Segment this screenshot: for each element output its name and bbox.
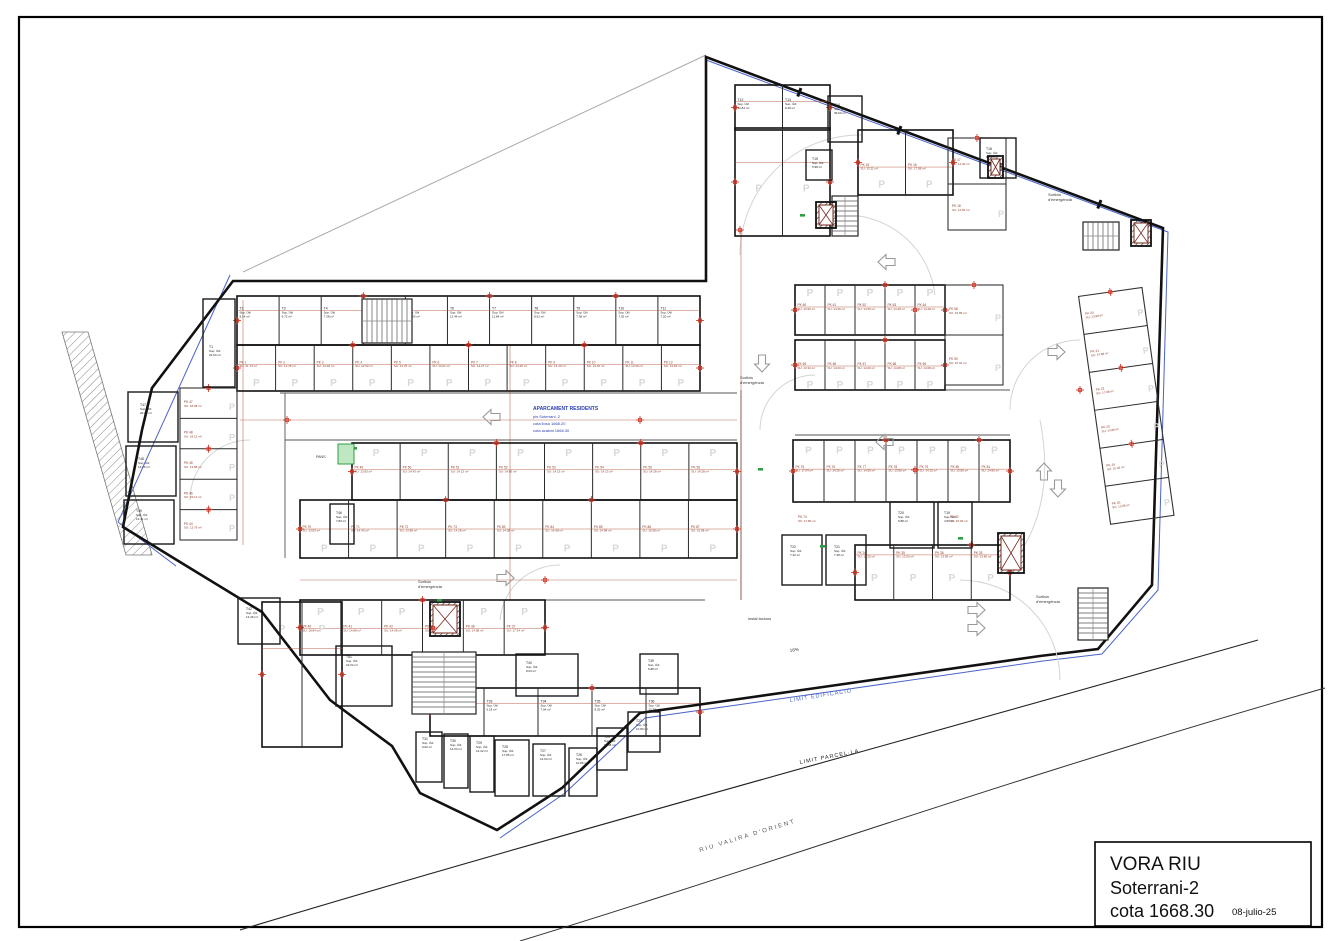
parking-watermark: P [321, 544, 328, 555]
stall-area: SU: 15.11 m² [184, 495, 201, 499]
parking-row-mid_bot: PK 70SU: 13.83 m²PPK 71SU: 14.43 m²PPK 7… [296, 496, 741, 558]
parking-row-mid_top: PK 49SU: 13.83 m²PPK 50SU: 14.43 m²PPK 5… [348, 439, 741, 500]
stall-area: SU: 17.80 m² [798, 519, 816, 523]
stall-area: SU: 15.06 m² [950, 519, 968, 523]
room-area: 12.41 m² [136, 517, 148, 521]
stall-area: SU: 13.60 m² [625, 364, 643, 368]
parking-watermark: P [867, 445, 874, 456]
project-name: VORA RIU [1110, 854, 1201, 875]
stall-area: SU: 12.63 m² [355, 364, 373, 368]
direction-arrow [755, 355, 770, 372]
red-cross-marker [911, 466, 919, 474]
exit-label2: d'emergència [740, 380, 765, 385]
stall-area: SU: 14.28 m² [691, 469, 709, 473]
red-cross-marker [465, 341, 473, 349]
room-area: 14.32 m² [476, 749, 488, 753]
stall-area: SU: 14.00 m² [858, 366, 876, 370]
parking-watermark: P [421, 448, 428, 459]
annotation-line4: cota acabat 1668.30 [533, 428, 570, 433]
installations-label: instal·lacions [748, 616, 771, 621]
parking-watermark: P [229, 402, 235, 412]
room-T22: T22Sup. Útil7.32 m² [782, 535, 822, 585]
pans-label: PANS [316, 455, 326, 459]
stall-area: SU: 14.43 m² [403, 469, 421, 473]
parking-watermark: P [469, 448, 476, 459]
room-area: 10.80 m² [636, 727, 648, 731]
room-T47: T47Sup. Útil20.04 m² [128, 392, 178, 442]
building-limit-line [500, 60, 1168, 838]
room-area: 14.33 m² [450, 747, 462, 751]
parking-row-tr_bot: PK 65SU: 13.34 m²PPK 66SU: 14.00 m²PPK 6… [791, 336, 949, 391]
parking-watermark: P [562, 378, 569, 389]
stall-area: SU: 17.04 m² [796, 469, 814, 473]
stall-area: SU: 14.98 m² [545, 529, 563, 533]
parking-watermark: P [600, 378, 607, 389]
parking-watermark: P [755, 183, 762, 194]
exit-label2: d'emergència [418, 584, 443, 589]
room-area: 7.02 m² [618, 315, 628, 319]
stairs-icon [1083, 222, 1119, 250]
room-area: 7.32 m² [790, 553, 800, 557]
parking-watermark: P [807, 288, 814, 299]
aisle-lines [280, 390, 1010, 600]
red-cross-marker [580, 341, 588, 349]
sheet-border [19, 17, 1322, 927]
room-area: 7.20 m² [660, 315, 670, 319]
stall-area: SU: 14.28 m² [448, 529, 466, 533]
room-area: 10.86 m² [576, 761, 588, 765]
stall-PK-74: PK 74SU: 17.80 m² [798, 515, 816, 523]
stairs-icon [412, 652, 476, 714]
red-cross-marker [733, 525, 741, 533]
parking-watermark: P [373, 448, 380, 459]
parking-row-mr_bot: PK 34SU: 13.25 m²PPK 35SU: 13.00 m²PPK 3… [851, 541, 1014, 600]
parking-watermark: P [330, 378, 337, 389]
stall-area: SU: 14.80 m² [499, 469, 517, 473]
red-cross-marker [349, 341, 357, 349]
room-T29: T29Sup. Útil14.32 m² [470, 736, 494, 792]
direction-arrow [876, 435, 893, 450]
parking-watermark: P [991, 445, 998, 456]
room-area: 7.38 m² [324, 315, 334, 319]
stall-area: SU: 13.79 m² [184, 526, 202, 530]
parking-watermark: P [878, 179, 885, 190]
door-mark [758, 468, 763, 471]
parking-watermark: P [639, 378, 646, 389]
river-label: RIU VALIRA D'ORIENT [699, 819, 797, 854]
stall-area: SU: 14.15 m² [920, 469, 938, 473]
room-area: 12.84 m² [738, 106, 750, 110]
parking-watermark: P [998, 209, 1004, 219]
exit-labels: Sortidad'emergència Sortidad'emergència … [418, 192, 1073, 604]
parking-row-tl: PK 1SU: 21.73 m²PPK 2SU: 13.78 m²PPK 3SU… [233, 341, 704, 391]
parking-watermark: P [807, 380, 814, 391]
parking-watermark: P [803, 183, 810, 194]
parking-watermark: P [837, 380, 844, 391]
parking-watermark: P [871, 573, 878, 584]
red-cross-marker [851, 569, 859, 577]
red-cross-marker [205, 445, 213, 453]
parking-watermark: P [897, 288, 904, 299]
parking-watermark: P [612, 544, 619, 555]
stall-area: SU: 14.26 m² [827, 469, 845, 473]
red-cross-marker [1006, 467, 1014, 475]
parking-watermark: P [517, 448, 524, 459]
parking-watermark: P [1153, 421, 1160, 432]
stall-area: SU: 14.83 m² [982, 469, 1000, 473]
direction-arrow [497, 571, 514, 586]
stall-area: SU: 13.85 m² [935, 555, 953, 559]
parking-watermark: P [867, 380, 874, 391]
red-cross-marker [636, 416, 644, 424]
parking-watermark: P [709, 544, 716, 555]
room-area: 6.72 m² [282, 315, 292, 319]
parking-watermark: P [480, 607, 487, 618]
annotation-title: APARCAMENT RESIDENTS [533, 406, 599, 412]
parking-stack-left_col: PK 47SU: 18.08 m²PPK 48SU: 18.12 m²PPK 4… [180, 384, 237, 540]
room-T19: T19Sup. Útil4.50 m² [938, 502, 972, 548]
stall-area: SU: 15.86 m² [949, 311, 967, 315]
parking-watermark: P [949, 573, 956, 584]
elevator-icon [1131, 220, 1151, 246]
room-T42: T42Sup. Útil13.46 m² [238, 598, 280, 644]
parking-watermark: P [369, 544, 376, 555]
room-area: 11.88 m² [604, 743, 616, 747]
parking-watermark: P [677, 378, 684, 389]
stall-area: SU: 14.27 m² [471, 364, 489, 368]
stall-area: SU: 14.08 m² [918, 366, 936, 370]
room-T20: T20Sup. Útil6.88 m² [890, 502, 934, 548]
parking-watermark: P [467, 544, 474, 555]
stall-area: SU: 13.60 m² [664, 364, 682, 368]
room-area: 20.04 m² [140, 411, 152, 415]
stall-area: SU: 13.83 m² [355, 469, 373, 473]
parking-row-mr_top: PK 75SU: 17.04 m²PPK 76SU: 14.26 m²PPK 7… [789, 436, 1014, 502]
parking-watermark: P [1137, 307, 1144, 318]
stall-area: SU: 13.80 m² [951, 469, 969, 473]
pans-room [338, 444, 354, 464]
parking-watermark: P [910, 573, 917, 584]
parking-watermark: P [867, 288, 874, 299]
stall-area: SU: 14.88 m² [343, 628, 361, 632]
elevator-icon [988, 156, 1003, 178]
stall-area: SU: 14.61 m² [432, 364, 450, 368]
drive-arcs [190, 135, 1080, 680]
room-T26: T26Sup. Útil10.86 m² [569, 748, 597, 796]
stairs-icon [362, 299, 412, 343]
red-cross-marker [541, 576, 549, 584]
red-cross-marker [696, 364, 704, 372]
door-mark [800, 214, 805, 217]
parking-watermark: P [1147, 383, 1154, 394]
room-area: 7.83 m² [336, 519, 346, 523]
red-cross-marker [283, 416, 291, 424]
parking-watermark: P [613, 448, 620, 459]
level-name: Soterrani-2 [1110, 878, 1199, 898]
parking-watermark: P [484, 378, 491, 389]
site-lines: RIU VALIRA D'ORIENT LIMIT PARCEL·LA LIMI… [118, 55, 1325, 941]
room-area: 7.38 m² [576, 315, 586, 319]
stall-area: SU: 13.00 m² [896, 555, 914, 559]
elevator-icon [998, 533, 1024, 573]
room-area: 7.48 m² [834, 553, 844, 557]
stall-area: SU: 18.12 m² [184, 434, 202, 438]
red-cross-marker [419, 596, 427, 604]
parking-watermark: P [564, 544, 571, 555]
parking-watermark: P [292, 378, 299, 389]
red-cross-marker [205, 506, 213, 514]
stall-area: SU: 14.13 m² [595, 469, 613, 473]
stall-area: SU: 14.50 m² [858, 307, 876, 311]
room-area: 39.60 m² [834, 111, 846, 115]
stall-area: SU: 13.50 m² [798, 307, 816, 311]
room-area: 12.44 m² [450, 315, 462, 319]
stall-area: SU: 14.28 m² [643, 469, 661, 473]
parking-watermark: P [995, 313, 1001, 323]
parking-stack-tr2b: PK 17SU: 14.30 m²PPK 18SU: 14.50 m²P [948, 134, 1006, 230]
stall-area: SU: 18.08 m² [184, 404, 202, 408]
parking-watermark: P [805, 445, 812, 456]
room-area: 9.49 m² [785, 106, 795, 110]
room-T31: T31Sup. Útil9.62 m² [416, 732, 442, 782]
room-area: 8.02 m² [595, 707, 605, 711]
stall-area: SU: 13.78 m² [278, 364, 296, 368]
room-area: 14.04 m² [540, 757, 552, 761]
red-cross-marker [205, 384, 213, 392]
stall-area: SU: 14.08 m² [384, 628, 402, 632]
stall-area: SU: 14.50 m² [858, 469, 876, 473]
stall-area: SU: 13.80 m² [889, 469, 907, 473]
annotation-line3: cota llosa 1668.20 [533, 421, 566, 426]
stall-area: SU: 14.25 m² [828, 307, 846, 311]
parking-watermark: P [515, 544, 522, 555]
stall-area: SU: 13.11 m² [861, 167, 878, 171]
elevator-icon [816, 202, 836, 228]
red-cross-marker [587, 496, 595, 504]
parking-watermark: P [661, 544, 668, 555]
stairs-icon [1078, 588, 1108, 640]
parking-watermark: P [836, 445, 843, 456]
parking-watermark: P [995, 363, 1001, 373]
parcel-thin-line [243, 55, 706, 272]
room-area: 8.61 m² [534, 315, 544, 319]
room-area: 17.85 m² [502, 753, 514, 757]
floor-plan-canvas: RIU VALIRA D'ORIENT LIMIT PARCEL·LA LIMI… [0, 0, 1341, 941]
red-cross-marker [970, 281, 978, 289]
room-area: 6.18 m² [487, 707, 497, 711]
room-area: 6.88 m² [648, 667, 658, 671]
parking-watermark: P [898, 445, 905, 456]
stall-area: SU: 13.88 m² [400, 529, 418, 533]
stall-area: SU: 13.25 m² [510, 364, 528, 368]
room-area: 7.04 m² [541, 707, 551, 711]
parking-watermark: P [229, 432, 235, 442]
parking-row-b1: PK 40SU: 18.84 m²PPK 41SU: 14.88 m²PPK 4… [296, 596, 549, 655]
stall-area: SU: 13.34 m² [798, 366, 816, 370]
parking-watermark: P [319, 624, 326, 635]
parking-watermark: P [418, 544, 425, 555]
parking-watermark: P [929, 445, 936, 456]
stall-area: SU: 14.28 m² [918, 307, 936, 311]
parking-watermark: P [369, 378, 376, 389]
room-row-t_top: T2Sup. Útil9.14 m²T3Sup. Útil6.72 m²T4Su… [233, 292, 704, 345]
red-cross-marker [338, 671, 346, 679]
room-T40: T40Sup. Útil8.03 m² [516, 654, 578, 696]
parking-watermark: P [521, 607, 528, 618]
limit-diagonal-left [118, 275, 230, 522]
red-cross-marker [733, 468, 741, 476]
stall-PK-82: PK 82SU: 15.06 m² [950, 515, 968, 523]
room-T30: T30Sup. Útil14.33 m² [444, 734, 468, 788]
room-area: 9.14 m² [240, 315, 250, 319]
stall-area: SU: 14.13 m² [547, 469, 565, 473]
drawing-sheet: RIU VALIRA D'ORIENT LIMIT PARCEL·LA LIMI… [0, 0, 1341, 941]
red-cross-marker [881, 336, 889, 344]
center-annotation: APARCAMENT RESIDENTS pis Soterrani -2 co… [533, 406, 599, 433]
parking-watermark: P [523, 378, 530, 389]
plan-date: 08-julio-25 [1232, 907, 1276, 918]
parcel-limit-label: LIMIT PARCEL·LA [799, 748, 860, 765]
parking-watermark: P [253, 378, 260, 389]
direction-arrow [968, 603, 985, 618]
parking-watermark: P [927, 288, 934, 299]
room-T21: T21Sup. Útil7.48 m² [826, 535, 866, 585]
room-T23: T23Sup. Útil10.80 m² [628, 712, 660, 752]
stall-area: SU: 14.08 m² [497, 529, 515, 533]
red-cross-marker [696, 708, 704, 716]
cota-value: cota 1668.30 [1110, 901, 1214, 921]
red-cross-marker [588, 684, 596, 692]
stall-area: SU: 14.88 m² [466, 628, 484, 632]
room-area: 23.64 m² [209, 353, 221, 357]
stall-area: SU: 17.08 m² [908, 167, 926, 171]
room-T15: T15Sup. Útil5.98 m² [806, 150, 832, 180]
parking-watermark: P [710, 448, 717, 459]
red-cross-marker [541, 624, 549, 632]
room-area: 6.88 m² [898, 519, 908, 523]
generated-plan-content: T2Sup. Útil9.14 m²T3Sup. Útil6.72 m²T4Su… [124, 85, 1174, 796]
parking-watermark: P [229, 493, 235, 503]
red-cross-marker [258, 671, 266, 679]
stall-area: SU: 15.08 m² [691, 529, 709, 533]
room-area: 11.84 m² [492, 315, 504, 319]
room-area: 22.62 m² [346, 663, 358, 667]
parking-watermark: P [229, 463, 235, 473]
parking-watermark: P [1142, 345, 1149, 356]
stall-area: SU: 13.40 m² [587, 364, 605, 368]
stall-area: SU: 15.08 m² [642, 529, 660, 533]
room-area: 12.76 m² [649, 707, 661, 711]
parking-watermark: P [837, 288, 844, 299]
parking-watermark: P [229, 523, 235, 533]
stall-area: SU: 13.40 m² [548, 364, 566, 368]
stall-area: SU: 14.28 m² [888, 307, 906, 311]
stall-area: SU: 17.34 m² [507, 628, 525, 632]
direction-arrow [483, 410, 500, 425]
parking-watermark: P [927, 380, 934, 391]
parking-watermark: P [399, 607, 406, 618]
parking-watermark: P [987, 573, 994, 584]
stall-area: SU: 13.75 m² [394, 364, 412, 368]
elevator-icon [430, 602, 460, 636]
stall-area: SU: 21.73 m² [240, 364, 258, 368]
stall-area: SU: 18.84 m² [303, 628, 321, 632]
exit-label2: d'emergència [1048, 197, 1073, 202]
parking-watermark: P [565, 448, 572, 459]
stall-area: SU: 14.00 m² [828, 366, 846, 370]
stall-area: SU: 14.08 m² [888, 366, 906, 370]
parking-watermark: P [317, 607, 324, 618]
red-cross-marker [731, 178, 739, 186]
stall-area: SU: 14.13 m² [451, 469, 469, 473]
red-cross-marker [975, 436, 983, 444]
direction-arrow [1051, 480, 1066, 497]
parking-watermark: P [358, 607, 365, 618]
stall-area: SU: 15.02 m² [949, 361, 967, 365]
stall-area: SU: 14.30 m² [952, 162, 970, 166]
parking-watermark: P [926, 179, 933, 190]
slope-label: 16% [789, 647, 799, 653]
door-mark [437, 599, 442, 602]
parking-row-tr_top: PK 60SU: 13.50 m²PPK 61SU: 14.25 m²PPK 6… [791, 281, 949, 335]
parking-watermark: P [1163, 497, 1170, 508]
room-row-t_wing: T12Sup. Útil12.84 m²T13Sup. Útil9.49 m² [731, 85, 834, 130]
parking-watermark: P [1158, 459, 1165, 470]
stall-area: SU: 14.50 m² [952, 208, 970, 212]
parking-watermark: P [897, 380, 904, 391]
stall-area: SU: 14.98 m² [594, 529, 612, 533]
red-cross-marker [1076, 386, 1084, 394]
room-area: 8.03 m² [526, 669, 536, 673]
parking-row-tr2: PK 15SU: 13.11 m²PPK 16SU: 17.08 m²P [854, 130, 957, 195]
parking-watermark: P [661, 448, 668, 459]
title-block: VORA RIU Soterrani-2 cota 1668.30 08-jul… [1095, 842, 1311, 926]
stall-area: SU: 13.88 m² [184, 465, 202, 469]
annotation-line2: pis Soterrani -2 [533, 414, 561, 419]
red-cross-marker [882, 436, 890, 444]
parking-watermark: P [407, 378, 414, 389]
stall-area: SU: 13.80 m² [974, 555, 992, 559]
stall-area: SU: 13.83 m² [303, 529, 321, 533]
red-cross-marker [612, 292, 620, 300]
door-mark [820, 545, 825, 548]
parking-watermark: P [960, 445, 967, 456]
red-cross-marker [826, 178, 834, 186]
room-T28: T28Sup. Útil17.85 m² [495, 740, 529, 796]
parking-watermark: P [446, 378, 453, 389]
parking-stack-tr_right: PK 58SU: 15.86 m²PPK 59SU: 15.02 m²P [945, 281, 1003, 385]
room-area: 5.98 m² [812, 165, 822, 169]
red-cross-marker [881, 281, 889, 289]
direction-arrow [968, 621, 985, 636]
red-cross-marker [486, 292, 494, 300]
exit-label2: d'emergència [1036, 599, 1061, 604]
room-area: 9.62 m² [422, 745, 432, 749]
room-area: 13.46 m² [246, 615, 258, 619]
red-cross-marker [696, 317, 704, 325]
door-mark [958, 537, 963, 540]
stall-area: SU: 13.28 m² [317, 364, 335, 368]
direction-arrow [878, 255, 895, 270]
room-area: 13.26 m² [138, 465, 150, 469]
